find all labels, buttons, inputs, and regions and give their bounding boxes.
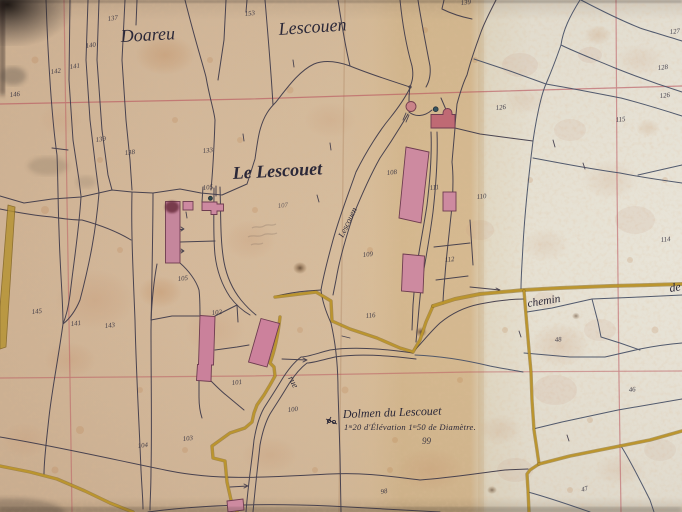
svg-text:139: 139 [95,136,107,144]
svg-text:115: 115 [615,116,626,124]
svg-text:109: 109 [362,251,373,259]
svg-text:110: 110 [476,193,487,201]
svg-text:114: 114 [660,236,671,244]
svg-text:100: 100 [287,406,298,414]
svg-text:141: 141 [69,63,80,71]
svg-text:1m20 d'Élévation 1m50 de Diamè: 1m20 d'Élévation 1m50 de Diamètre. [344,422,476,432]
svg-text:116: 116 [365,312,376,320]
svg-text:104: 104 [137,442,148,450]
svg-text:127: 127 [669,28,680,36]
svg-text:146: 146 [9,91,20,99]
svg-text:101: 101 [231,379,242,387]
svg-text:141: 141 [70,320,81,328]
svg-text:103: 103 [182,435,193,443]
svg-text:128: 128 [657,64,668,72]
svg-text:153: 153 [244,10,255,18]
svg-text:111: 111 [429,184,439,192]
svg-text:Doareu: Doareu [119,23,175,46]
svg-text:126: 126 [659,92,670,100]
svg-text:107: 107 [277,202,288,210]
svg-text:137: 137 [107,15,119,23]
svg-text:143: 143 [104,322,115,330]
svg-text:102: 102 [211,309,222,317]
svg-text:140: 140 [85,42,97,50]
svg-text:133: 133 [202,147,213,155]
svg-text:105: 105 [177,275,188,283]
svg-text:99: 99 [422,436,432,446]
svg-text:138: 138 [124,149,135,157]
svg-text:126: 126 [495,104,506,112]
svg-text:145: 145 [31,308,42,316]
svg-text:105: 105 [202,184,213,192]
svg-text:142: 142 [50,68,62,76]
svg-text:108: 108 [386,169,397,177]
svg-text:112: 112 [444,256,455,264]
